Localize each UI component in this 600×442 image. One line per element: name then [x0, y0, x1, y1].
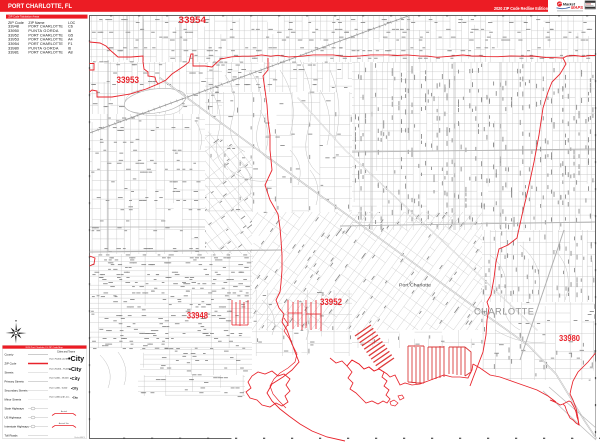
svg-text:PORT CHARLOTTE: PORT CHARLOTTE	[28, 51, 63, 55]
svg-text:33954: 33954	[179, 15, 207, 25]
svg-text:33952: 33952	[320, 296, 342, 307]
svg-text:Toll Roads: Toll Roads	[5, 434, 19, 438]
svg-text:ZIP Code Tabulation Areas: ZIP Code Tabulation Areas	[8, 15, 39, 19]
svg-text:•City: •City	[69, 367, 82, 373]
svg-text:33981: 33981	[8, 51, 19, 55]
svg-text:•City: •City	[70, 376, 80, 381]
svg-text:US Highways: US Highways	[5, 416, 22, 420]
svg-text:Port Charlotte: Port Charlotte	[399, 283, 432, 288]
svg-text:Over 1,000 and Less: Over 1,000 and Less	[49, 396, 70, 399]
svg-text:33953: 33953	[117, 74, 140, 85]
svg-text:Amtrak: Amtrak	[61, 410, 67, 413]
svg-text:MAPS: MAPS	[571, 5, 583, 10]
svg-text:Over 1,000 - 5,000: Over 1,000 - 5,000	[49, 387, 68, 390]
svg-text:Interstate Highways: Interstate Highways	[5, 425, 30, 429]
svg-text:•City: •City	[72, 396, 78, 400]
svg-text:•City: •City	[71, 387, 78, 391]
svg-text:Over 5,000 - 25,000: Over 5,000 - 25,000	[49, 377, 69, 380]
svg-text:Over 25,000 - 75,000: Over 25,000 - 75,000	[49, 368, 70, 371]
svg-text:County: County	[5, 353, 14, 357]
svg-text:Streets: Streets	[5, 371, 14, 375]
svg-text:Cities and Towns: Cities and Towns	[57, 350, 76, 353]
svg-text:ZIP Code: ZIP Code	[5, 362, 17, 366]
svg-text:Secondary Streets: Secondary Streets	[5, 389, 29, 393]
svg-text:2020 ZIP Code Redline Edition: 2020 ZIP Code Redline Edition	[494, 6, 548, 11]
svg-text:33980: 33980	[559, 334, 580, 343]
svg-text:PORT CHARLOTTE, FL: PORT CHARLOTTE, FL	[8, 3, 72, 10]
svg-text:CHARLOTTE: CHARLOTTE	[474, 306, 534, 316]
svg-text:Primary Streets: Primary Streets	[5, 380, 25, 384]
svg-text:Minor Streets: Minor Streets	[5, 398, 22, 402]
svg-text:•City: •City	[68, 354, 84, 363]
svg-text:A8: A8	[68, 51, 73, 55]
svg-text:2020 Port Charlotte, FL ZIP C: 2020 Port Charlotte, FL ZIP Code Map	[25, 346, 63, 349]
svg-text:MarketMAPS: MarketMAPS	[74, 436, 85, 439]
svg-text:33948: 33948	[187, 311, 208, 321]
svg-text:State Highways: State Highways	[5, 407, 25, 411]
svg-text:Amtrak Sta.: Amtrak Sta.	[59, 422, 70, 425]
